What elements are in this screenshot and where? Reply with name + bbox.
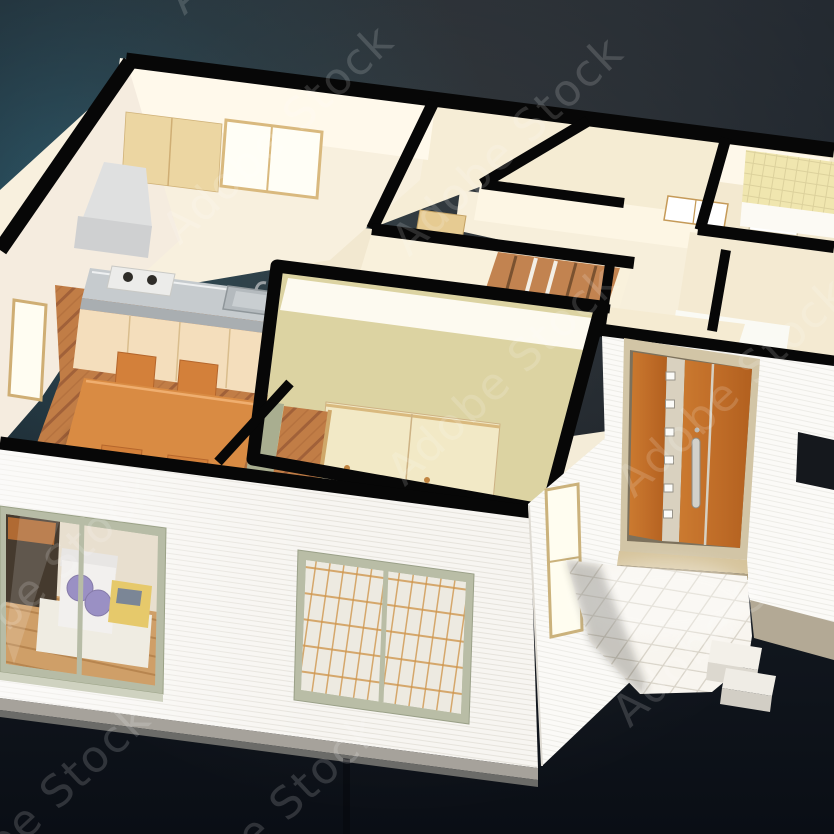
magazine [116,588,142,606]
recessed-window [796,432,834,490]
floorplan-render: Adobe Stock Adobe Stock Adobe Stock Adob… [0,0,834,834]
shoji-window [294,550,474,724]
sofa-cushion [85,590,111,616]
kitchen-left-window [9,300,46,400]
floorplan-svg: Adobe Stock Adobe Stock Adobe Stock Adob… [0,0,834,834]
